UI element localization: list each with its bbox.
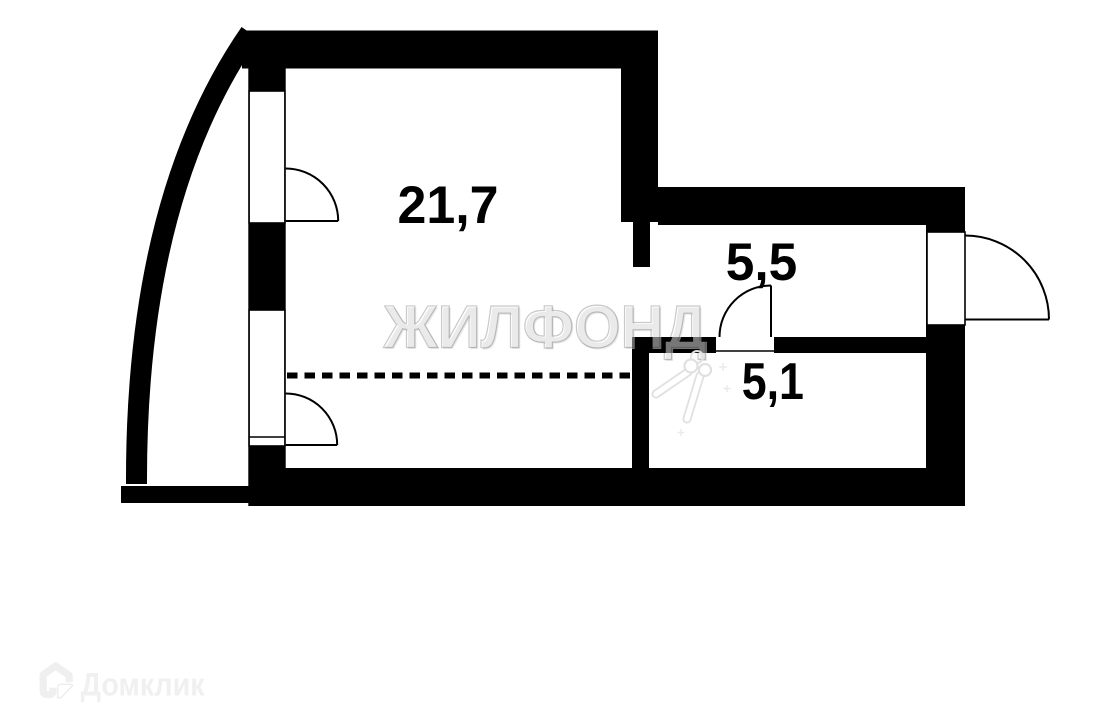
svg-text:Домклик: Домклик <box>81 667 206 703</box>
svg-text:ЖИЛФОНД: ЖИЛФОНД <box>384 295 708 362</box>
svg-text:21,7: 21,7 <box>397 177 498 236</box>
svg-text:5,5: 5,5 <box>726 233 797 292</box>
svg-text:5,1: 5,1 <box>742 353 804 411</box>
